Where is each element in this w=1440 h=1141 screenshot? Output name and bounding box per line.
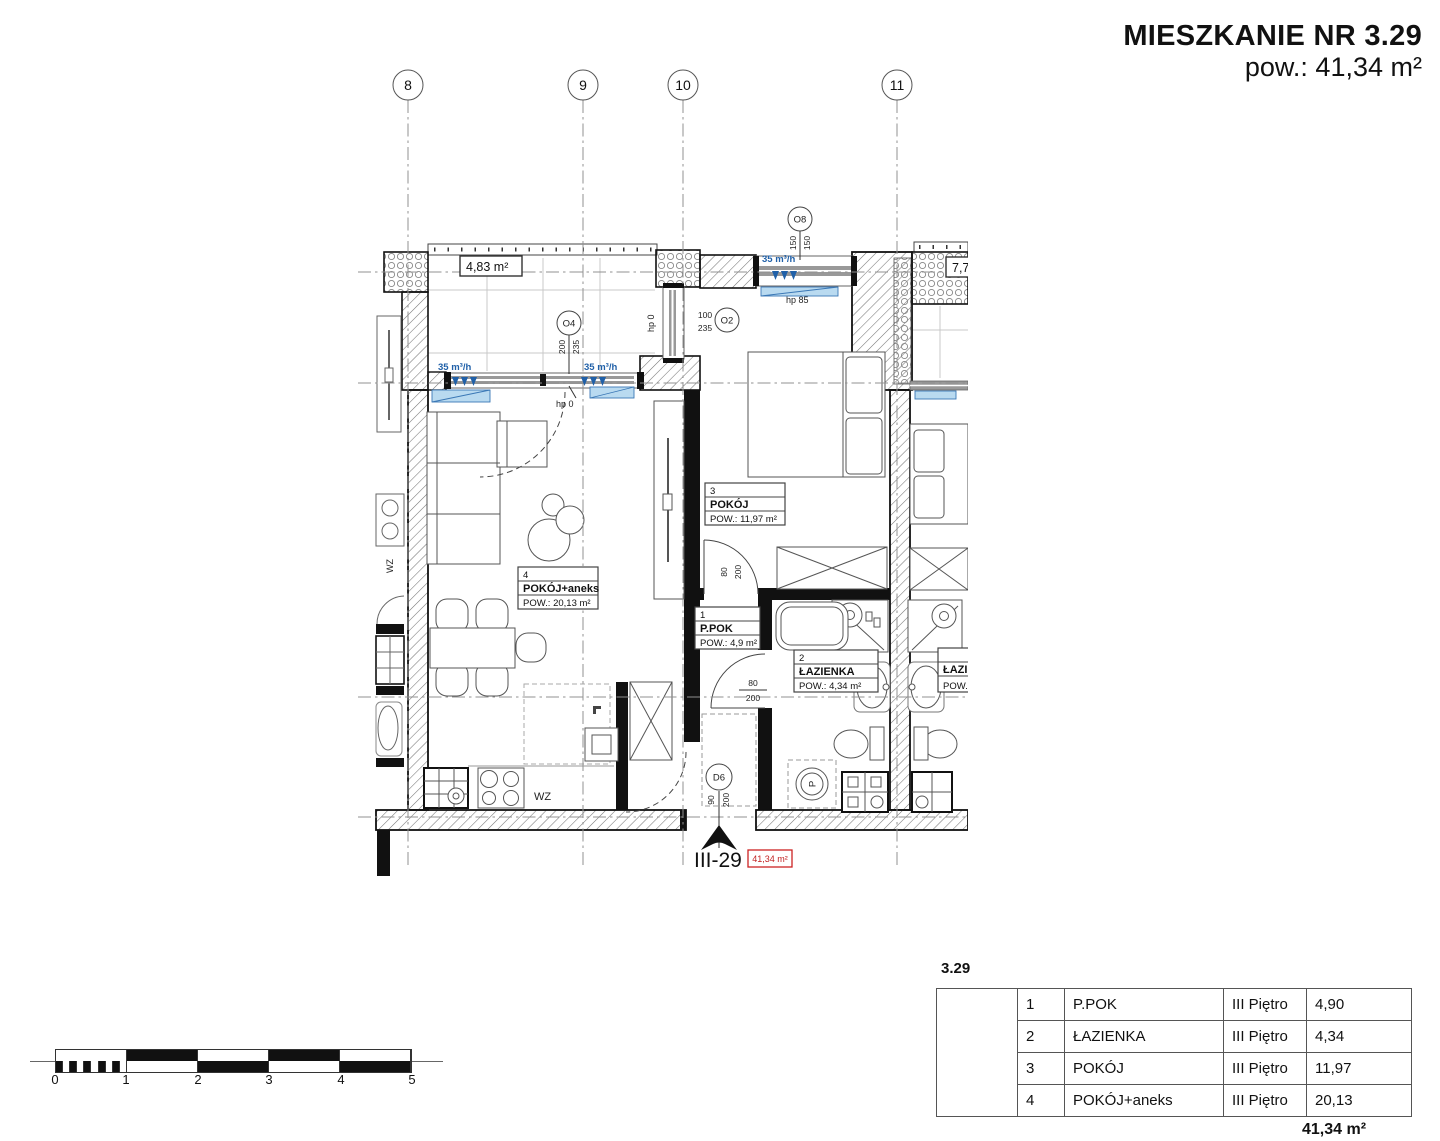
svg-text:2: 2 <box>799 653 804 664</box>
svg-text:3: 3 <box>710 486 715 497</box>
living-room-furniture <box>427 401 684 696</box>
scale-label-1: 1 <box>122 1072 129 1087</box>
o8-dim-h: 150 <box>802 236 812 250</box>
svg-text:ŁAZIENKA: ŁAZIENKA <box>943 664 999 676</box>
vent-label-1: 35 m³/h <box>438 362 471 373</box>
o4-dim-w: 200 <box>557 340 567 354</box>
grid-bubble-9: 9 <box>579 77 587 93</box>
scale-bar <box>55 1049 412 1073</box>
room-summary-table: 1 P.POK III Piętro 4,90 2 ŁAZIENKA III P… <box>936 988 1412 1117</box>
bedroom-door-arc <box>704 540 758 594</box>
scale-label-3: 3 <box>265 1072 272 1087</box>
entrance-marker: III-29 41,34 m² <box>694 825 792 872</box>
o2-hp: hp 0 <box>646 314 656 332</box>
bedroom-door-dim-h: 200 <box>733 565 743 579</box>
table-row: 1 P.POK III Piętro 4,90 <box>937 989 1412 1021</box>
svg-text:POKÓJ+aneks: POKÓJ+aneks <box>523 582 599 595</box>
kitchen-l-mark <box>593 706 601 714</box>
svg-text:4: 4 <box>523 570 528 581</box>
table-total-area: 41,34 m² <box>1302 1121 1366 1139</box>
sheet-header: MIESZKANIE NR 3.29 pow.: 41,34 m² <box>1123 20 1422 83</box>
vent-label-3: 35 m³/h <box>762 254 795 265</box>
bathroom-door-dim-w: 80 <box>748 678 758 688</box>
marker-o8: O8 <box>794 215 807 226</box>
o2-dim-h: 235 <box>698 323 712 333</box>
room-label-neighbor-bath: ŁAZIENKA POW.: <box>938 648 1020 692</box>
o4-hp: hp 0 <box>556 399 574 409</box>
bedroom-door-dim-w: 80 <box>719 567 729 577</box>
washer-label: P <box>808 781 819 787</box>
room-label-4: 4 POKÓJ+aneks POW.: 20,13 m² <box>518 567 599 609</box>
kitchen-wz-label: WZ <box>534 791 551 803</box>
svg-text:POW.: 11,97 m²: POW.: 11,97 m² <box>710 514 777 525</box>
apartment-title: MIESZKANIE NR 3.29 <box>1123 20 1422 52</box>
svg-text:1: 1 <box>700 610 705 621</box>
marker-o4: O4 <box>563 319 576 330</box>
vent-label-2: 35 m³/h <box>584 362 617 373</box>
unit-area-red: 41,34 m² <box>752 854 788 864</box>
floor-plan-drawing: 8 9 10 11 35 m³/h 35 m³/h 35 m³/h <box>0 0 1440 1141</box>
grid-bubble-8: 8 <box>404 77 412 93</box>
room-label-1: 1 P.POK POW.: 4,9 m² <box>695 607 760 649</box>
pillow <box>846 357 882 413</box>
scale-label-2: 2 <box>194 1072 201 1087</box>
grid-bubbles: 8 9 10 11 <box>393 70 912 100</box>
svg-text:POW.: 4,9 m²: POW.: 4,9 m² <box>700 638 757 649</box>
svg-text:POW.: 4,34 m²: POW.: 4,34 m² <box>799 681 861 692</box>
scale-bar-bottom-row <box>56 1061 411 1072</box>
o8-hp: hp 85 <box>786 295 809 305</box>
scale-label-4: 4 <box>337 1072 344 1087</box>
apartment-area: pow.: 41,34 m² <box>1123 52 1422 82</box>
unit-number: III-29 <box>694 849 742 872</box>
table-caption: 3.29 <box>941 960 970 977</box>
room-label-3: 3 POKÓJ POW.: 11,97 m² <box>705 483 785 525</box>
d6-dim-w: 90 <box>706 795 716 805</box>
svg-text:P.POK: P.POK <box>700 623 733 635</box>
neighbor-balcony-area-label: 7,7 <box>952 261 969 275</box>
thumbnail-cell <box>937 989 1018 1117</box>
scale-label-5: 5 <box>408 1072 415 1087</box>
neighbor-left <box>376 316 404 767</box>
d6-dim-h: 200 <box>721 793 731 807</box>
svg-text:POW.: 20,13 m²: POW.: 20,13 m² <box>523 598 591 609</box>
entry-door-arc <box>626 752 686 812</box>
toilet <box>834 730 868 758</box>
marker-d6: D6 <box>713 773 725 784</box>
svg-text:POKÓJ: POKÓJ <box>710 498 749 511</box>
svg-text:POW.:: POW.: <box>943 681 970 692</box>
grid-bubble-11: 11 <box>890 77 905 93</box>
o8-dim-w: 150 <box>788 236 798 250</box>
bathroom-door-dim-h: 200 <box>746 693 760 703</box>
bedroom-furniture <box>748 352 887 589</box>
scale-label-0: 0 <box>51 1072 58 1087</box>
balcony-area-label: 4,83 m² <box>466 260 508 274</box>
neighbor-wz-label: WZ <box>385 559 395 573</box>
marker-o2: O2 <box>721 316 734 327</box>
kitchen <box>424 682 672 808</box>
neighbor-right <box>908 424 968 812</box>
o4-dim-h: 235 <box>571 340 581 354</box>
pillow <box>846 418 882 474</box>
o2-dim-w: 100 <box>698 310 712 320</box>
grid-bubble-10: 10 <box>675 77 691 93</box>
svg-text:ŁAZIENKA: ŁAZIENKA <box>799 666 855 678</box>
scale-bar-top-row <box>56 1050 411 1061</box>
floor-plan-sheet: 8 9 10 11 35 m³/h 35 m³/h 35 m³/h <box>0 0 1440 1141</box>
room-label-2: 2 ŁAZIENKA POW.: 4,34 m² <box>794 650 878 692</box>
